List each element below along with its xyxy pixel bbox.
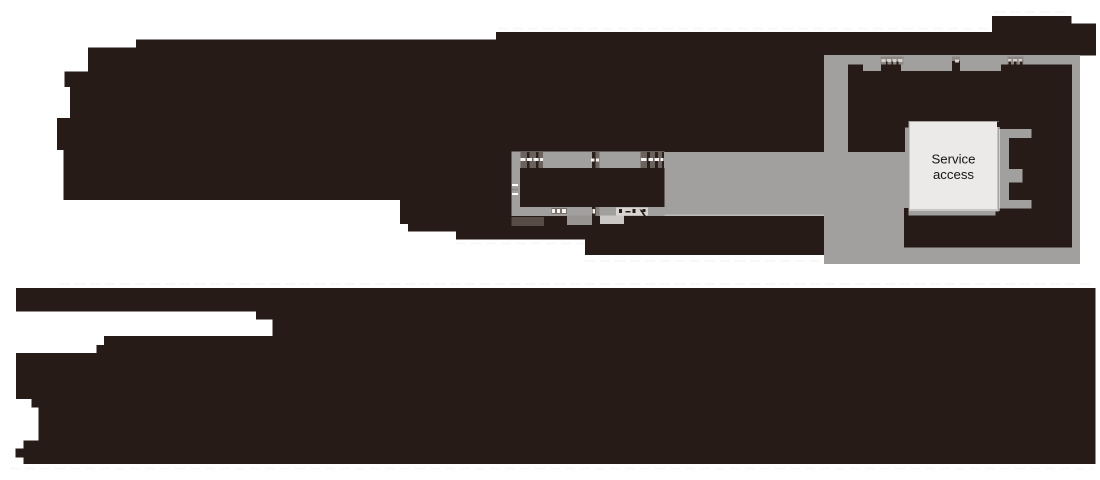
svg-text:access: access bbox=[933, 167, 974, 182]
svg-text:Service: Service bbox=[932, 151, 976, 166]
